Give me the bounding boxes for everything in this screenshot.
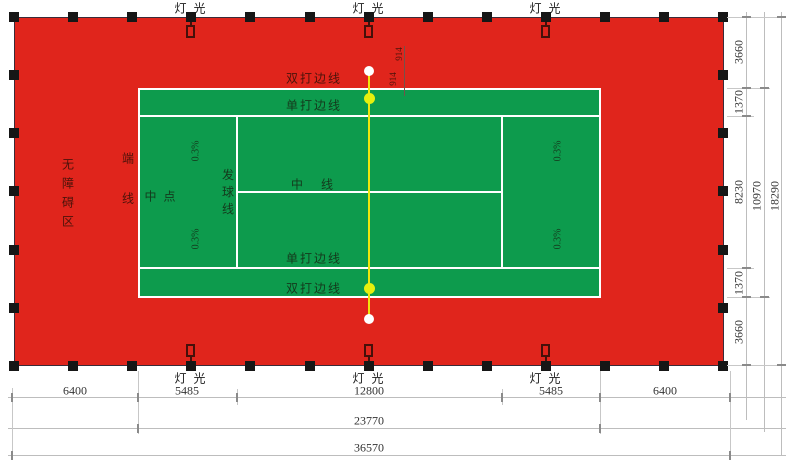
singles-sideline-label-bottom: 单打边线 (286, 250, 342, 267)
fence-post (9, 128, 19, 138)
fence-post (659, 361, 669, 371)
dim-5485-right: 5485 (539, 384, 563, 399)
fence-post (305, 361, 315, 371)
dim-tick (742, 364, 751, 366)
fence-post (9, 245, 19, 255)
fence-post (659, 12, 669, 22)
dim-court-width: 10970 (750, 181, 765, 211)
fence-post (9, 12, 19, 22)
dim-tick (742, 87, 751, 89)
fence-post (541, 12, 551, 22)
singles-stick-marker-top (364, 93, 375, 104)
fence-post (600, 361, 610, 371)
dim-overall-width: 18290 (768, 181, 783, 211)
slope-label-bottom-right: 0.3% (553, 229, 564, 250)
slope-label-top-left: 0.3% (191, 141, 202, 162)
net-post-marker-top (364, 66, 374, 76)
dim-tick (760, 87, 769, 89)
dim-8230-middle: 8230 (732, 180, 747, 204)
barrier-free-zone-label: 无障碍区 (60, 158, 77, 234)
dim-line-h3 (8, 455, 786, 456)
fence-post (364, 12, 374, 22)
dim-tick (137, 393, 139, 402)
fence-post (718, 186, 728, 196)
dim-tick (501, 393, 503, 402)
dim-tick (777, 364, 786, 366)
fence-post (423, 361, 433, 371)
dim-tick (137, 424, 139, 433)
fence-post (718, 70, 728, 80)
dim-tick (599, 393, 601, 402)
doubles-sideline-label-bottom: 双打边线 (286, 280, 342, 297)
end-line-label: 端线 (120, 152, 137, 232)
fence-post (186, 361, 196, 371)
fence-post (305, 12, 315, 22)
center-mark-label: 中 点 (144, 188, 177, 205)
net-offset-dim-914-a: 914 (394, 47, 404, 61)
net-offset-dim-914-b: 914 (388, 72, 398, 86)
fence-post (718, 128, 728, 138)
lamp-icon-bottom-left (186, 344, 195, 357)
dim-line-v1 (746, 12, 747, 420)
tennis-court-plan: 914 914 灯 光 灯 光 灯 光 灯 光 灯 光 灯 光 无障碍区 端线 … (0, 0, 787, 465)
fence-post (68, 12, 78, 22)
fence-post (482, 361, 492, 371)
dim-line-h2 (8, 428, 786, 429)
dim-6400-left: 6400 (63, 384, 87, 399)
dim-tick (729, 451, 731, 460)
dim-3660-top: 3660 (732, 40, 747, 64)
fence-post (9, 361, 19, 371)
dim-5485-left: 5485 (175, 384, 199, 399)
dim-1370-top: 1370 (732, 90, 747, 114)
fence-post (186, 12, 196, 22)
net-line (368, 71, 370, 319)
dim-tick (599, 424, 601, 433)
fence-post (9, 303, 19, 313)
dim-court-length: 23770 (354, 414, 384, 429)
slope-label-bottom-left: 0.3% (191, 229, 202, 250)
fence-post (718, 303, 728, 313)
fence-post (718, 361, 728, 371)
fence-post (9, 186, 19, 196)
center-line-label: 中 线 (291, 176, 333, 193)
slope-label-top-right: 0.3% (553, 141, 564, 162)
lamp-icon-top-center (364, 25, 373, 38)
lamp-icon-bottom-right (541, 344, 550, 357)
dim-tick (11, 451, 13, 460)
dim-3660-bottom: 3660 (732, 320, 747, 344)
dim-line-v2 (764, 12, 765, 432)
fence-post (245, 361, 255, 371)
service-line-label: 发球线 (220, 169, 237, 220)
dim-tick (742, 16, 751, 18)
fence-post (68, 361, 78, 371)
singles-stick-marker-bottom (364, 283, 375, 294)
extension-line (730, 371, 731, 458)
net-post-marker-bottom (364, 314, 374, 324)
lamp-icon-bottom-center (364, 344, 373, 357)
dim-line-v3 (781, 12, 782, 456)
net-offset-dim-line (404, 46, 405, 96)
lamp-icon-top-left (186, 25, 195, 38)
fence-post (423, 12, 433, 22)
dim-1370-bottom: 1370 (732, 271, 747, 295)
dim-tick (729, 393, 731, 402)
fence-post (9, 70, 19, 80)
dim-tick (742, 267, 751, 269)
dim-6400-right: 6400 (653, 384, 677, 399)
fence-post (600, 12, 610, 22)
dim-tick (742, 115, 751, 117)
fence-post (718, 245, 728, 255)
fence-post (364, 361, 374, 371)
fence-post (482, 12, 492, 22)
dim-12800-center: 12800 (354, 384, 384, 399)
dim-tick (11, 393, 13, 402)
fence-post (127, 361, 137, 371)
dim-tick (760, 296, 769, 298)
dim-tick (742, 296, 751, 298)
lamp-icon-top-right (541, 25, 550, 38)
dim-tick (777, 16, 786, 18)
singles-sideline-label-top: 单打边线 (286, 97, 342, 114)
doubles-sideline-label-top: 双打边线 (286, 70, 342, 87)
dim-overall-length: 36570 (354, 441, 384, 456)
dim-tick (236, 393, 238, 402)
fence-post (127, 12, 137, 22)
fence-post (541, 361, 551, 371)
fence-post (245, 12, 255, 22)
